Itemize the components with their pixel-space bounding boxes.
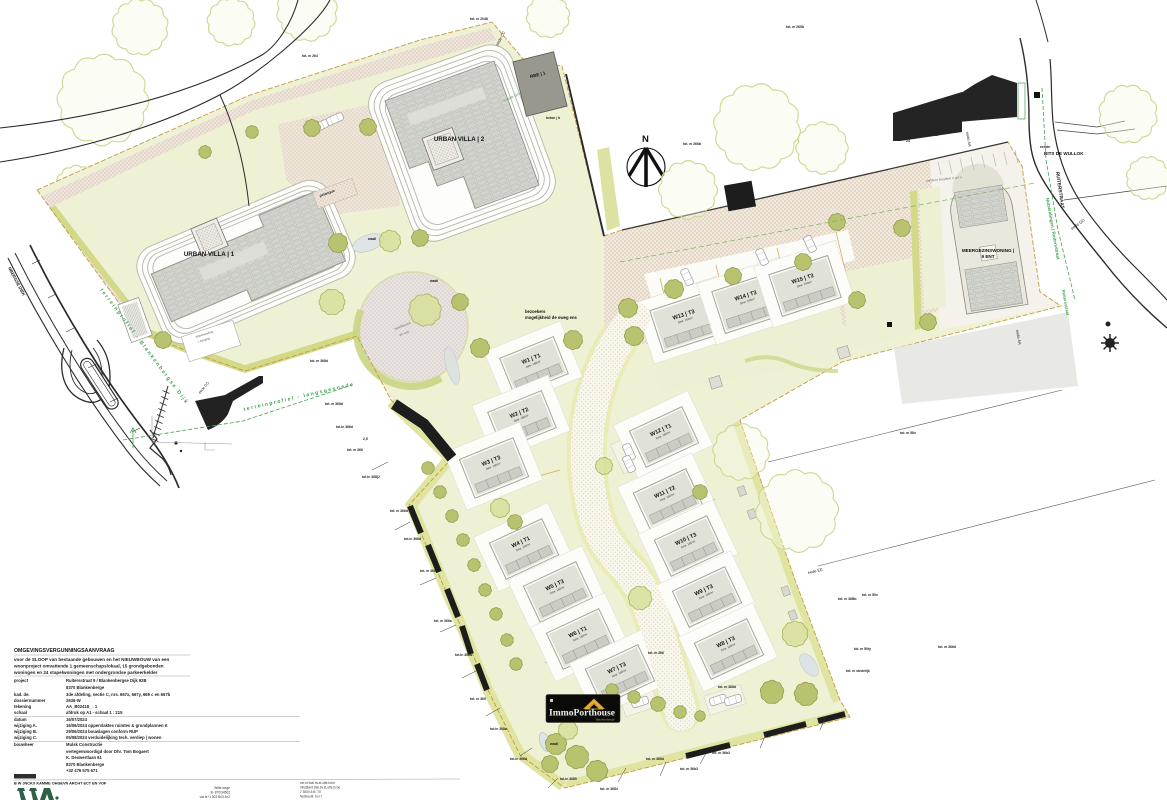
svg-text:tot. m 50x: tot. m 50x xyxy=(862,593,878,597)
svg-text:Ruitersstraat 9 / Blankenbergs: Ruitersstraat 9 / Blankenbergse Dijk 92B xyxy=(66,678,147,683)
svg-text:Mulsk Constructie: Mulsk Constructie xyxy=(66,742,103,747)
svg-text:schaal: schaal xyxy=(14,710,27,715)
svg-text:AA_B02418_ . 1: AA_B02418_ . 1 xyxy=(66,704,98,709)
svg-text:ver.nt thal bv.st.ofte.tv.be: ver.nt thal bv.st.ofte.tv.be xyxy=(300,781,335,785)
svg-text:2,5: 2,5 xyxy=(363,437,368,441)
svg-text:kad. de.: kad. de. xyxy=(14,692,30,697)
svg-text:tot.in 3689: tot.in 3689 xyxy=(560,777,577,781)
svg-text:8370 Blankenberge: 8370 Blankenberge xyxy=(66,762,105,767)
svg-text:tot. m 26b: tot. m 26b xyxy=(922,133,938,137)
svg-text:7 3000.5 B. T0: 7 3000.5 B. T0 xyxy=(300,790,321,794)
svg-text:RITS DE WULLOK: RITS DE WULLOK xyxy=(1044,151,1084,156)
svg-text:tot. m 58x: tot. m 58x xyxy=(900,431,916,435)
svg-text:tot. m 368d: tot. m 368d xyxy=(310,359,328,363)
svg-text:vertegenwoordigd door Dhr. Tom: vertegenwoordigd door Dhr. Tom Bogaert xyxy=(66,749,149,754)
svg-text:dossiernummer: dossiernummer xyxy=(14,698,46,703)
svg-text:tot. m 366: tot. m 366 xyxy=(347,448,363,452)
svg-text:URBAN VILLA | 1: URBAN VILLA | 1 xyxy=(184,251,235,258)
svg-text:datum: datum xyxy=(14,717,27,722)
svg-text:wadi: wadi xyxy=(549,742,558,746)
svg-text:N: N xyxy=(642,134,649,145)
svg-text:tot.in 36da: tot.in 36da xyxy=(455,653,472,657)
svg-text:project: project xyxy=(14,678,29,683)
svg-text:8370 Blankenberge: 8370 Blankenberge xyxy=(66,685,105,690)
svg-text:Notilva.M. bu t t: Notilva.M. bu t t xyxy=(300,795,322,799)
svg-text:tot. m 3684: tot. m 3684 xyxy=(600,787,618,791)
svg-text:tot. m 2048: tot. m 2048 xyxy=(470,17,488,21)
svg-text:info@ard.thal.bv.st.ofte.tv.be: info@ard.thal.bv.st.ofte.tv.be xyxy=(300,786,340,790)
svg-text:woningen en 24 stapelwoningen: woningen en 24 stapelwoningen met onderg… xyxy=(13,670,158,675)
svg-text:tot.in 366d: tot.in 366d xyxy=(510,757,527,761)
svg-text:tot. m 366a: tot. m 366a xyxy=(434,619,452,623)
svg-text:tekening: tekening xyxy=(14,704,32,709)
svg-text:tot.in 366d: tot.in 366d xyxy=(336,425,353,429)
svg-text:bouwheer: bouwheer xyxy=(14,742,34,747)
svg-text:tot. m 36Bd: tot. m 36Bd xyxy=(838,597,856,601)
svg-text:tot. m 36b3: tot. m 36b3 xyxy=(712,751,730,755)
svg-text:tot.in 368a: tot.in 368a xyxy=(490,727,507,731)
svg-text:2636-W: 2636-W xyxy=(66,698,81,703)
svg-text:+32 476 575 671: +32 476 575 671 xyxy=(66,768,98,773)
svg-text:mogelijkheid de oweg ens: mogelijkheid de oweg ens xyxy=(525,315,578,320)
svg-text:tot. m 366: tot. m 366 xyxy=(648,651,664,655)
svg-text:OMGEVINGSVERGUNNINGSAANVRAAG: OMGEVINGSVERGUNNINGSAANVRAAG xyxy=(14,648,115,654)
svg-text:wijziging A.: wijziging A. xyxy=(13,723,37,728)
svg-text:tot. m 36b3: tot. m 36b3 xyxy=(680,767,698,771)
svg-text:vat te+1 503 B03 4n2: vat te+1 503 B03 4n2 xyxy=(200,795,231,799)
svg-text:16/07/2024: 16/07/2024 xyxy=(66,717,88,722)
svg-text:9 ENT: 9 ENT xyxy=(981,254,994,259)
svg-text:tot. m 264: tot. m 264 xyxy=(302,54,318,58)
svg-text:wadi: wadi xyxy=(367,237,376,241)
svg-text:24: 24 xyxy=(906,139,910,143)
svg-text:K. Deswertlaan 61: K. Deswertlaan 61 xyxy=(66,755,103,760)
svg-text:tot. m 366d: tot. m 366d xyxy=(938,645,956,649)
svg-text:tot. m 265b: tot. m 265b xyxy=(786,25,804,29)
svg-text:URBAN VILLA | 2: URBAN VILLA | 2 xyxy=(434,136,485,143)
svg-text:tot. m 368d: tot. m 368d xyxy=(325,402,343,406)
svg-text:16/06/2024 oppervlaktes ruimte: 16/06/2024 oppervlaktes ruimtes & grondp… xyxy=(66,723,168,728)
svg-text:voor de SLOOP van bestaande ge: voor de SLOOP van bestaande gebouwen en … xyxy=(14,657,170,662)
svg-text:tot. m 369: tot. m 369 xyxy=(470,697,486,701)
svg-text:eerste: eerste xyxy=(1040,145,1050,149)
svg-text:05/08/2024 verduidelijking tec: 05/08/2024 verduidelijking tech. verdiep… xyxy=(66,735,162,740)
svg-text:tot. m 368d: tot. m 368d xyxy=(718,685,736,689)
svg-text:tot. m 366d: tot. m 366d xyxy=(390,509,408,513)
svg-text:MEERGEZINSWONING |: MEERGEZINSWONING | xyxy=(962,248,1014,253)
svg-text:Witte wege: Witte wege xyxy=(214,786,230,790)
svg-text:tot.in 366d: tot.in 366d xyxy=(404,537,421,541)
svg-text:tot. m 366d: tot. m 366d xyxy=(646,757,664,761)
svg-text:ImmoPorthouse: ImmoPorthouse xyxy=(549,708,615,718)
svg-text:Blankenberge: Blankenberge xyxy=(596,718,615,722)
svg-text:woonproject omvattende 1 gemee: woonproject omvattende 1 gemeenschapslok… xyxy=(13,664,164,669)
svg-text:B- 8T0/34562: B- 8T0/34562 xyxy=(211,791,231,795)
svg-text:tot.in 368(2: tot.in 368(2 xyxy=(362,475,380,479)
svg-text:wijziging B.: wijziging B. xyxy=(13,729,37,734)
svg-text:tot. m stedelijk: tot. m stedelijk xyxy=(846,669,870,673)
svg-text:bezoekers: bezoekers xyxy=(525,309,546,314)
svg-text:tot. m 36b: tot. m 36b xyxy=(420,569,436,573)
svg-text:3de afdeling, sectie C, nrs. 6: 3de afdeling, sectie C, nrs. 667x, 667y,… xyxy=(66,692,171,697)
svg-text:tot. m 50ty: tot. m 50ty xyxy=(854,647,871,651)
svg-text:B W JNCKX KAMME OHGEVN ARCHT E: B W JNCKX KAMME OHGEVN ARCHT ECT EN VOF xyxy=(14,782,107,786)
svg-text:wijziging C.: wijziging C. xyxy=(13,735,37,740)
svg-text:29/06/2024 bouwlagen conform R: 29/06/2024 bouwlagen conform RUP xyxy=(66,729,138,734)
svg-text:wadi: wadi xyxy=(429,279,438,283)
svg-text:tot. m 266b: tot. m 266b xyxy=(683,142,701,146)
svg-text:beton | b: beton | b xyxy=(546,116,560,120)
svg-text:afdruk op A1 - schaal 1 : 21: afdruk op A1 - schaal 1 : 215 xyxy=(66,710,123,715)
